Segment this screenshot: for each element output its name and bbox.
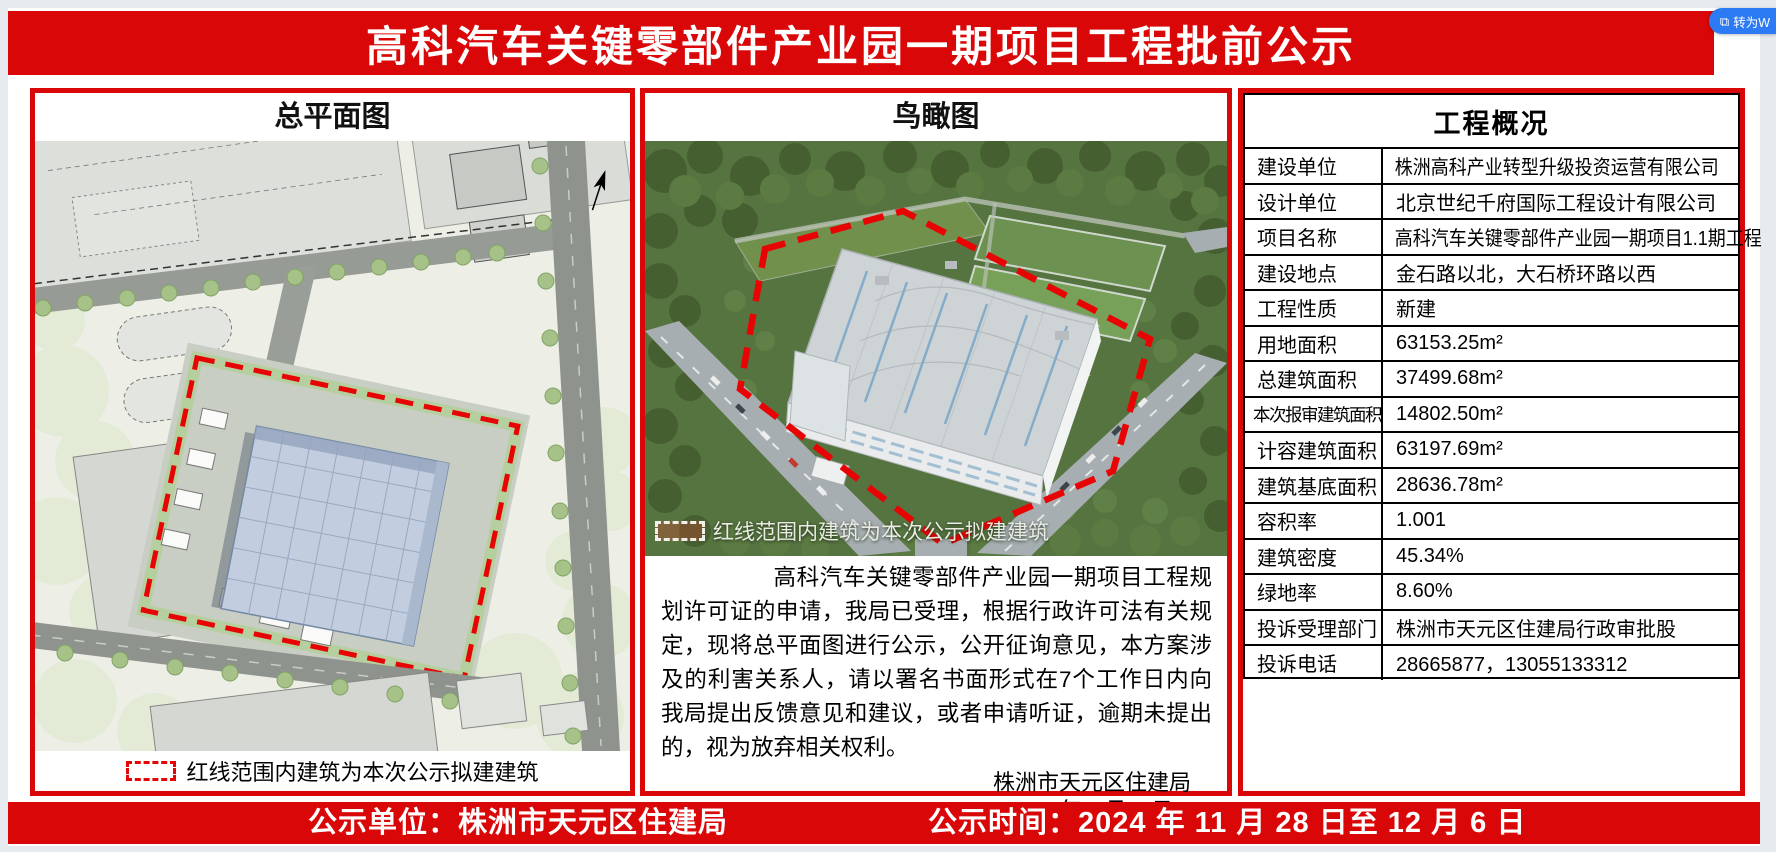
row-value: 63197.69m² [1383, 433, 1738, 467]
row-label: 工程性质 [1245, 291, 1383, 325]
row-label: 项目名称 [1245, 220, 1383, 254]
proposed-building [211, 424, 449, 646]
signature-unit: 株洲市天元区住建局 [993, 769, 1191, 797]
convert-to-word-button[interactable]: ⧉ 转为W [1709, 8, 1776, 34]
publisher-label: 公示单位：株洲市天元区住建局 [308, 802, 728, 844]
row-value: 63153.25m² [1383, 327, 1738, 361]
row-value: 28636.78m² [1383, 469, 1738, 503]
row-value: 14802.50m² [1383, 398, 1738, 432]
site-plan-legend: 红线范围内建筑为本次公示拟建建筑 [35, 751, 630, 791]
row-label: 容积率 [1245, 504, 1383, 538]
aerial-legend: 红线范围内建筑为本次公示拟建建筑 [655, 516, 1049, 546]
row-value: 37499.68m² [1383, 362, 1738, 396]
footer-bar: 公示单位：株洲市天元区住建局 公示时间：2024 年 11 月 28 日至 12… [8, 802, 1760, 844]
row-label: 计容建筑面积 [1245, 433, 1383, 467]
red-dashed-box-icon [126, 761, 176, 781]
site-plan-drawing [35, 141, 630, 751]
row-value: 45.34% [1383, 540, 1738, 574]
row-value: 株洲市天元区住建局行政审批股 [1383, 611, 1738, 645]
site-plan-panel: 总平面图 [30, 88, 635, 796]
row-value: 株洲高科产业转型升级投资运营有限公司 [1383, 149, 1719, 183]
table-row: 项目名称 高科汽车关键零部件产业园一期项目1.1期工程 [1245, 218, 1738, 254]
table-row: 建设地点 金石路以北，大石桥环路以西 [1245, 254, 1738, 290]
row-label: 建筑密度 [1245, 540, 1383, 574]
table-row: 本次报审建筑面积 14802.50m² [1245, 396, 1738, 432]
table-row: 建设单位 株洲高科产业转型升级投资运营有限公司 [1245, 147, 1738, 183]
row-label: 投诉受理部门 [1245, 611, 1383, 645]
notice-title-banner: 高科汽车关键零部件产业园一期项目工程批前公示 [8, 11, 1714, 75]
row-label: 建设单位 [1245, 149, 1383, 183]
table-row: 总建筑面积 37499.68m² [1245, 360, 1738, 396]
app-background: 高科汽车关键零部件产业园一期项目工程批前公示 总平面图 [0, 0, 1776, 852]
table-row: 建筑密度 45.34% [1245, 538, 1738, 574]
notice-poster: 高科汽车关键零部件产业园一期项目工程批前公示 总平面图 [8, 8, 1760, 846]
convert-icon: ⧉ [1720, 15, 1729, 28]
row-value: 8.60% [1383, 575, 1738, 609]
row-label: 设计单位 [1245, 185, 1383, 219]
row-value: 28665877，13055133312 [1383, 646, 1738, 680]
row-label: 投诉电话 [1245, 646, 1383, 680]
aerial-title: 鸟瞰图 [645, 93, 1227, 141]
aerial-legend-text: 红线范围内建筑为本次公示拟建建筑 [713, 516, 1049, 546]
site-plan-title: 总平面图 [35, 93, 630, 141]
period-label: 公示时间：2024 年 11 月 28 日至 12 月 6 日 [928, 802, 1526, 844]
table-row: 设计单位 北京世纪千府国际工程设计有限公司 [1245, 183, 1738, 219]
red-dashed-box-icon [655, 521, 705, 541]
table-row: 用地面积 63153.25m² [1245, 325, 1738, 361]
row-label: 绿地率 [1245, 575, 1383, 609]
row-label: 用地面积 [1245, 327, 1383, 361]
site-plan-legend-text: 红线范围内建筑为本次公示拟建建筑 [186, 755, 538, 787]
table-row: 工程性质 新建 [1245, 289, 1738, 325]
row-label: 建设地点 [1245, 256, 1383, 290]
row-value: 金石路以北，大石桥环路以西 [1383, 256, 1738, 290]
row-label: 建筑基底面积 [1245, 469, 1383, 503]
overview-table: 工程概况 建设单位 株洲高科产业转型升级投资运营有限公司 设计单位 北京世纪千府… [1243, 93, 1740, 679]
table-row: 投诉电话 28665877，13055133312 [1245, 644, 1738, 680]
table-row: 绿地率 8.60% [1245, 573, 1738, 609]
row-value: 北京世纪千府国际工程设计有限公司 [1383, 185, 1738, 219]
notice-paragraph: 高科汽车关键零部件产业园一期项目工程规划许可证的申请，我局已受理，根据行政许可法… [645, 556, 1227, 765]
notice-title: 高科汽车关键零部件产业园一期项目工程批前公示 [366, 13, 1356, 74]
table-row: 计容建筑面积 63197.69m² [1245, 431, 1738, 467]
row-value: 新建 [1383, 291, 1738, 325]
table-row: 建筑基底面积 28636.78m² [1245, 467, 1738, 503]
row-label: 总建筑面积 [1245, 362, 1383, 396]
row-label: 本次报审建筑面积 [1245, 398, 1383, 432]
aerial-rendering: 红线范围内建筑为本次公示拟建建筑 [645, 141, 1227, 556]
overview-table-panel: 工程概况 建设单位 株洲高科产业转型升级投资运营有限公司 设计单位 北京世纪千府… [1238, 88, 1745, 796]
row-value: 高科汽车关键零部件产业园一期项目1.1期工程 [1383, 220, 1762, 254]
table-row: 投诉受理部门 株洲市天元区住建局行政审批股 [1245, 609, 1738, 645]
table-row: 容积率 1.001 [1245, 502, 1738, 538]
table-title: 工程概况 [1245, 95, 1738, 147]
convert-label: 转为W [1733, 12, 1770, 31]
aerial-panel: 鸟瞰图 [640, 88, 1232, 796]
row-value: 1.001 [1383, 504, 1738, 538]
